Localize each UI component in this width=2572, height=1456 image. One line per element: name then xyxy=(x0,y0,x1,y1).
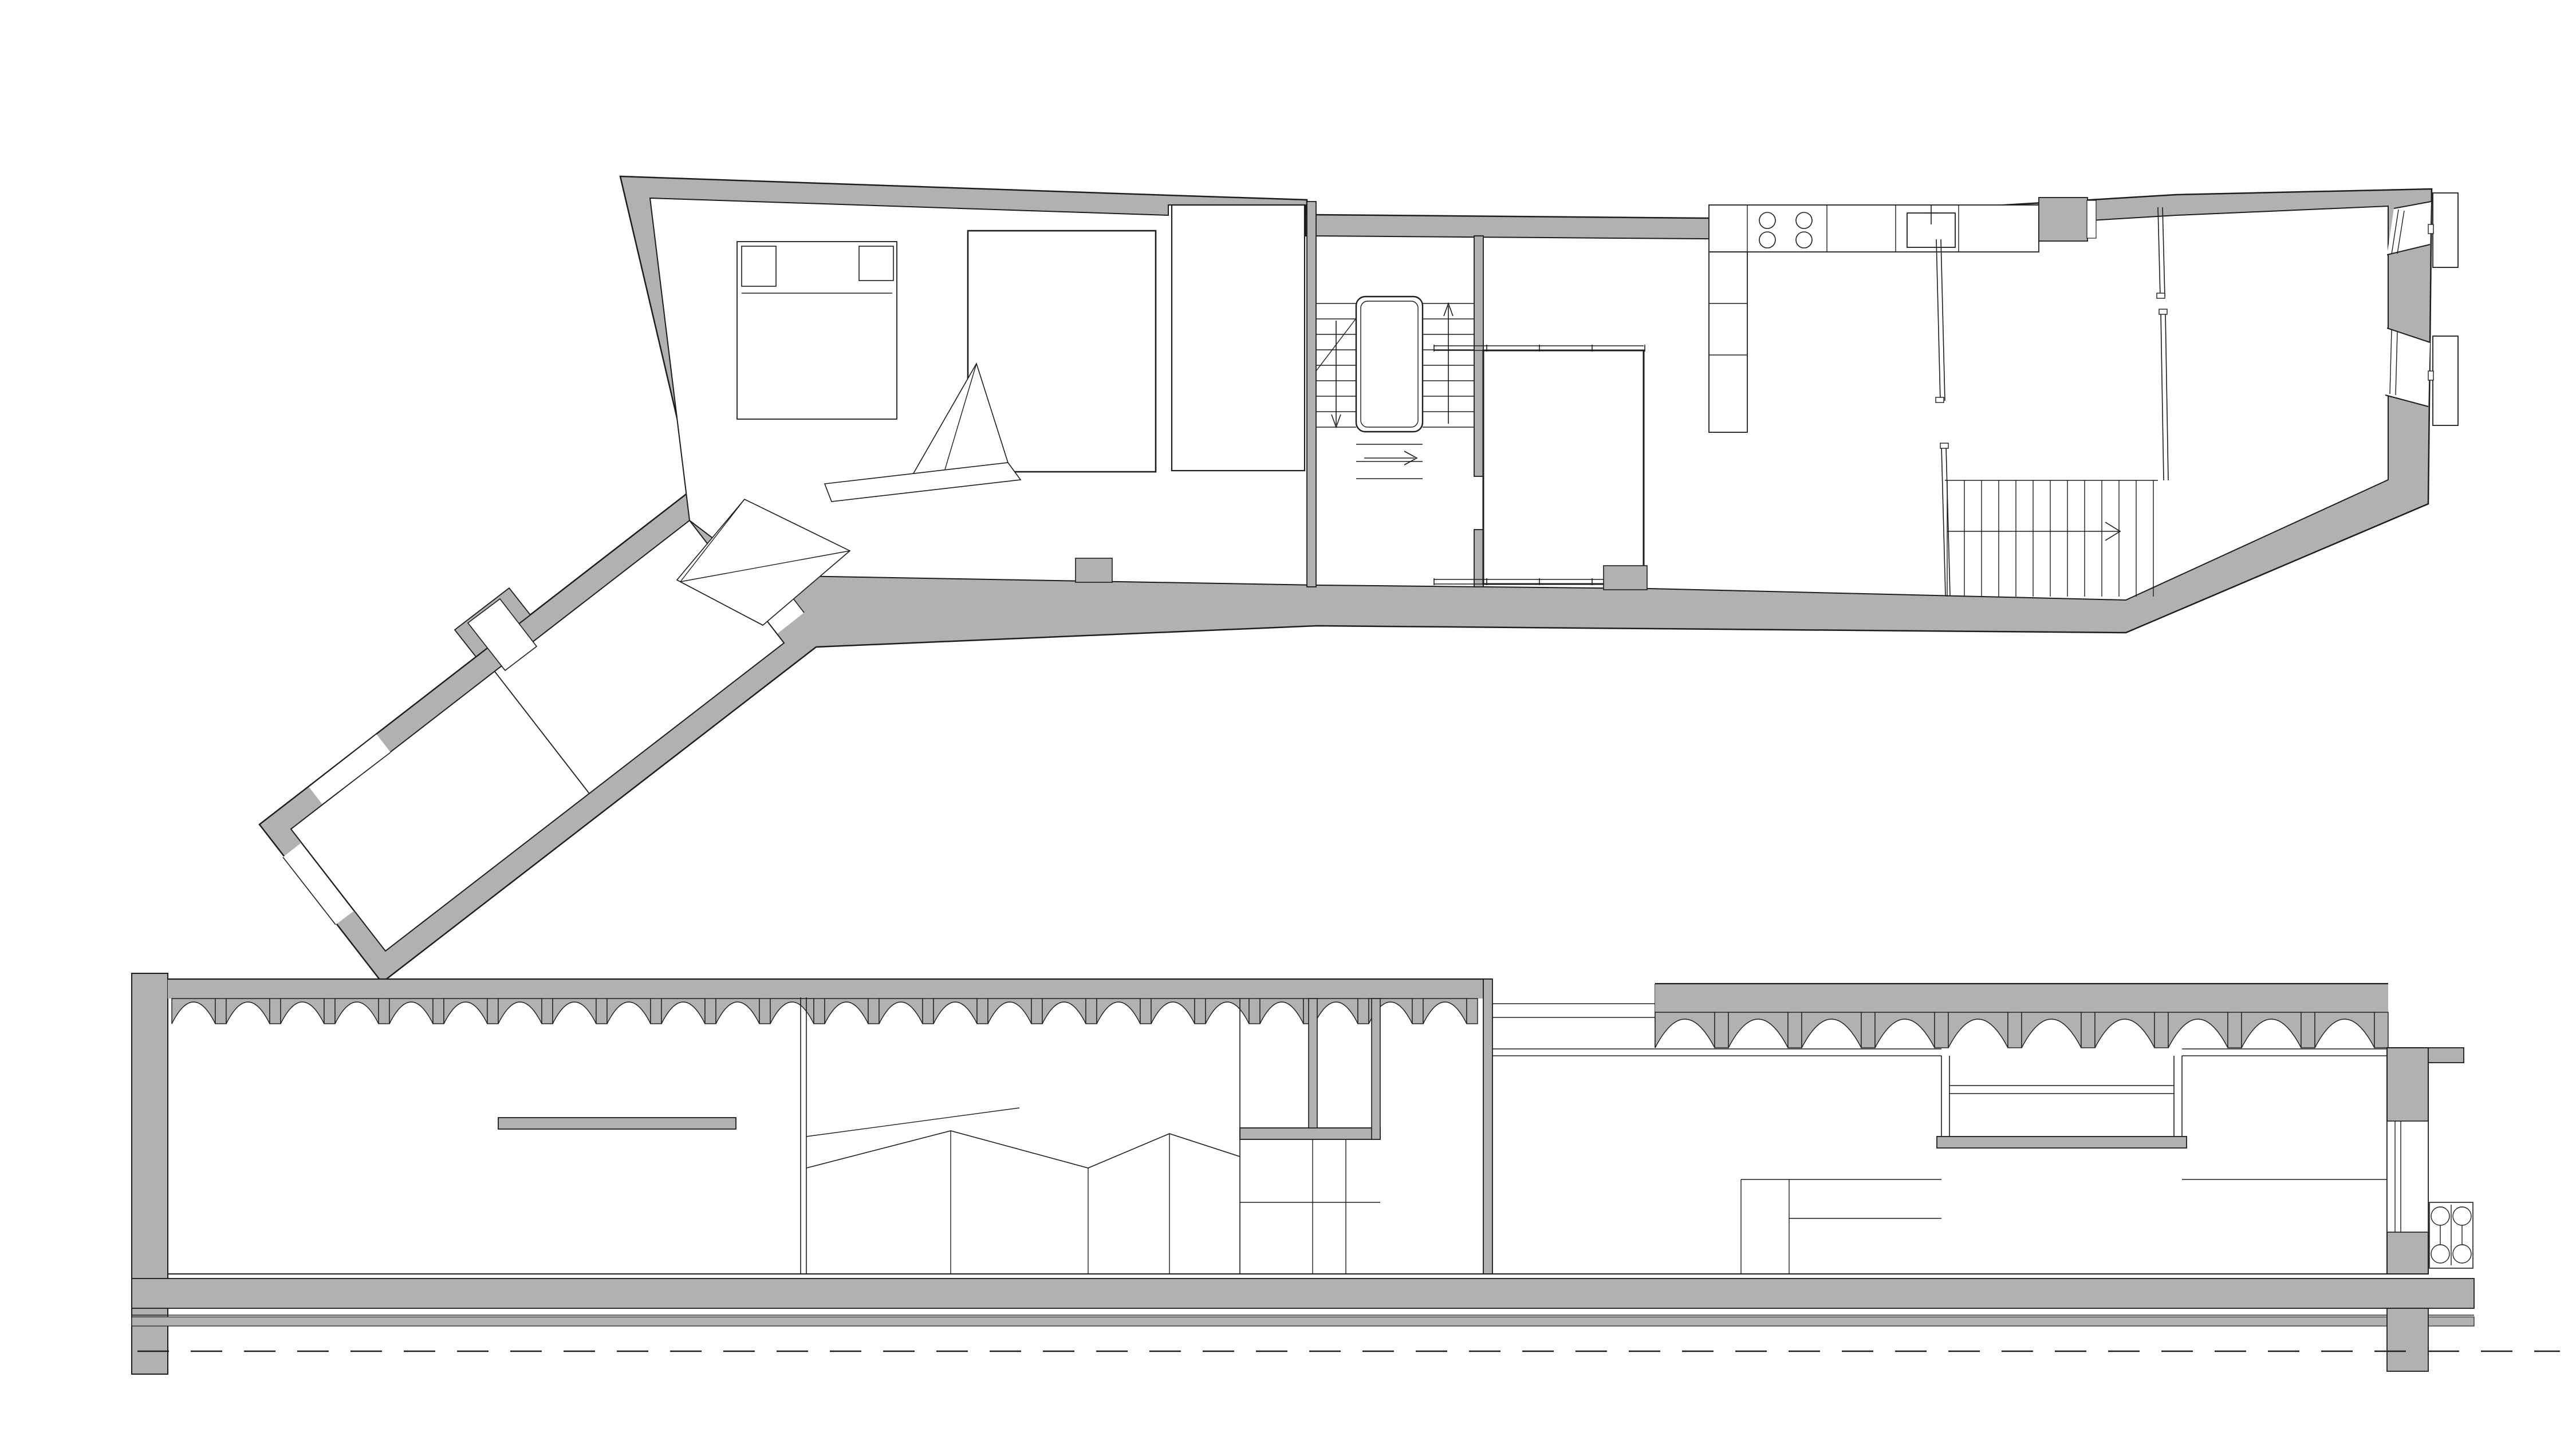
drawing-stage xyxy=(0,0,2572,1456)
catalan-vaults-low-beam xyxy=(923,999,934,1024)
catalan-vaults-high-beam xyxy=(1861,1012,1875,1048)
catalan-vaults-low-beam xyxy=(270,999,281,1024)
balcony-door-tick xyxy=(2428,371,2433,380)
top-wall-niche-slot xyxy=(2087,200,2096,238)
catalan-vaults-low-beam xyxy=(651,999,661,1024)
suspended-box-slab xyxy=(1937,1137,2187,1148)
partition-jamb-tick xyxy=(2157,293,2165,298)
catalan-vaults-high-beam xyxy=(1715,1012,1728,1048)
catalan-vaults-low-beam xyxy=(1412,999,1423,1024)
mezzanine-post xyxy=(1309,999,1317,1128)
catalan-vaults-low-beam xyxy=(1031,999,1042,1024)
mezzanine-slab xyxy=(1240,1128,1380,1139)
catalan-vaults-low-beam xyxy=(596,999,607,1024)
catalan-vaults-high-beam xyxy=(2374,1012,2388,1048)
bedroom-bed-pillow xyxy=(859,246,893,281)
balcony-door-tick xyxy=(2428,224,2433,234)
catalan-vaults-high-beam xyxy=(2008,1012,2022,1048)
catalan-vaults-high-beam xyxy=(2301,1012,2315,1048)
kitchen-base-cabinet-leg xyxy=(1709,252,1747,432)
bedroom-bed-pillow xyxy=(742,246,776,286)
wall-shelf xyxy=(498,1118,736,1129)
stairwell-right-wall xyxy=(1474,530,1483,587)
catalan-vaults-low-beam xyxy=(542,999,553,1024)
partition-jamb-tick xyxy=(1936,397,1944,403)
catalan-vaults-low-beam xyxy=(324,999,335,1024)
catalan-vaults-low-beam xyxy=(814,999,825,1024)
catalan-vaults-high-beam xyxy=(2155,1012,2168,1048)
catalan-vaults-high-beam xyxy=(2228,1012,2242,1048)
catalan-vaults-low-beam xyxy=(759,999,770,1024)
catalan-vaults-low-beam xyxy=(1195,999,1206,1024)
catalan-vaults-high-beam xyxy=(2081,1012,2095,1048)
stairwell-right-wall xyxy=(1474,236,1483,476)
top-wall-niche-poche xyxy=(2039,198,2087,241)
architectural-drawing xyxy=(0,0,2572,1456)
catalan-vaults-low-beam xyxy=(1467,999,1478,1024)
catalan-vaults-low-beam xyxy=(705,999,716,1024)
section-left-wall xyxy=(132,973,168,1374)
vault-band-high xyxy=(1655,984,2388,1012)
stair-railing-outer xyxy=(1356,297,1423,432)
catalan-vaults-low-beam xyxy=(977,999,988,1024)
entry-threshold-tab xyxy=(1076,558,1112,582)
catalan-vaults-low-beam xyxy=(1140,999,1151,1024)
right-foundation xyxy=(2387,1308,2428,1371)
section-mid-wall xyxy=(1483,979,1492,1274)
catalan-vaults-low-beam xyxy=(1086,999,1097,1024)
right-window-opening xyxy=(2387,1121,2428,1232)
catalan-vaults-low-beam xyxy=(487,999,498,1024)
catalan-vaults-low-beam xyxy=(215,999,226,1024)
partition-jamb-tick xyxy=(2159,309,2167,314)
catalan-vaults-low-beam xyxy=(1249,999,1260,1024)
floor-slab xyxy=(132,1279,2474,1308)
catalan-vaults-high-beam xyxy=(1935,1012,1948,1048)
partition-jamb-tick xyxy=(1940,443,1948,448)
catalan-vaults-high-beam xyxy=(1788,1012,1802,1048)
bathroom-box xyxy=(1172,205,1305,471)
balcony-outline xyxy=(2433,336,2458,425)
catalan-vaults-low-beam xyxy=(379,999,389,1024)
balcony-outline xyxy=(2433,193,2458,267)
cornice-tab xyxy=(2428,1048,2464,1063)
catalan-vaults-low-beam xyxy=(1358,999,1369,1024)
glass-room-box xyxy=(1483,350,1644,584)
catalan-vaults-low-beam xyxy=(433,999,444,1024)
kitchen-counter xyxy=(1709,205,2039,252)
sub-slab-strip xyxy=(132,1317,2474,1326)
catalan-vaults-low-beam xyxy=(868,999,879,1024)
stairwell-left-wall xyxy=(1307,202,1316,587)
entry-threshold-tab xyxy=(1604,566,1647,590)
mezzanine-post xyxy=(1372,999,1380,1139)
vault-band-low xyxy=(168,979,1492,999)
